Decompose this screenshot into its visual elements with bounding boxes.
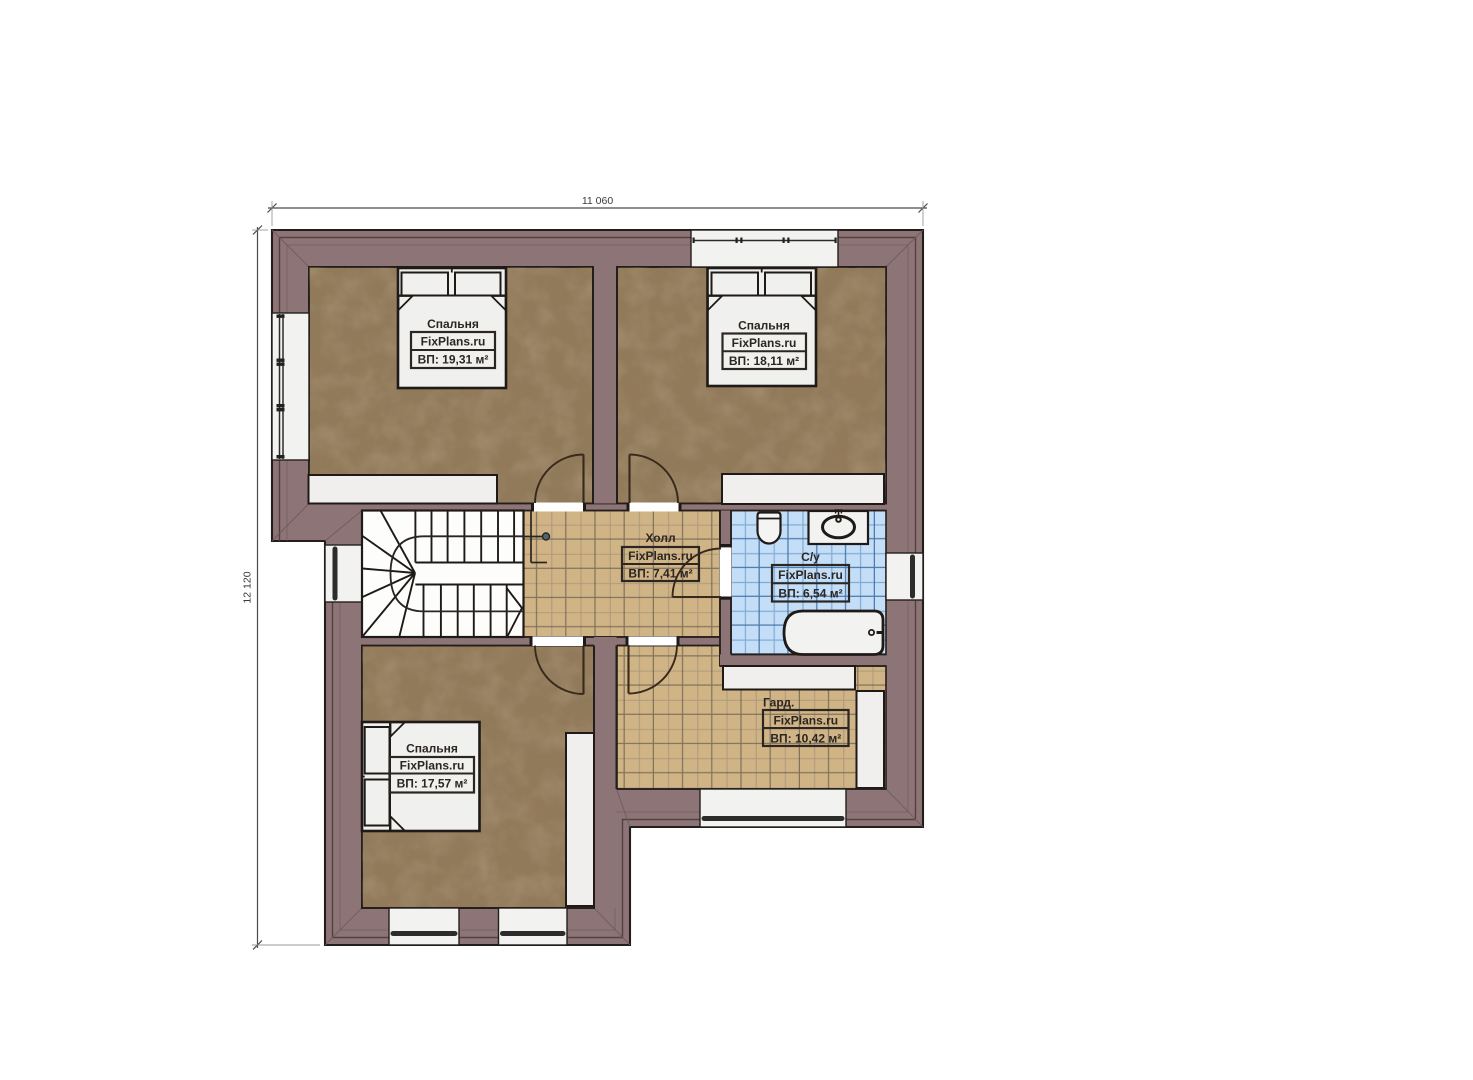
svg-text:ВП: 17,57 м²: ВП: 17,57 м² xyxy=(397,777,468,791)
svg-text:Гард.: Гард. xyxy=(763,696,794,710)
svg-text:FixPlans.ru: FixPlans.ru xyxy=(421,335,486,349)
svg-text:FixPlans.ru: FixPlans.ru xyxy=(778,568,843,582)
svg-text:ВП: 18,11 м²: ВП: 18,11 м² xyxy=(729,354,799,368)
svg-text:12 120: 12 120 xyxy=(242,571,254,603)
svg-text:FixPlans.ru: FixPlans.ru xyxy=(732,336,797,350)
svg-text:Спальня: Спальня xyxy=(406,742,458,756)
svg-text:FixPlans.ru: FixPlans.ru xyxy=(773,714,838,728)
svg-text:Спальня: Спальня xyxy=(738,319,790,333)
svg-text:FixPlans.ru: FixPlans.ru xyxy=(400,759,465,773)
svg-text:С/у: С/у xyxy=(801,550,820,564)
svg-text:Спальня: Спальня xyxy=(427,317,479,331)
svg-text:FixPlans.ru: FixPlans.ru xyxy=(628,549,693,563)
svg-text:ВП: 10,42 м²: ВП: 10,42 м² xyxy=(770,732,841,746)
svg-text:Холл: Холл xyxy=(645,531,675,545)
svg-text:ВП: 19,31 м²: ВП: 19,31 м² xyxy=(418,353,489,367)
svg-text:ВП: 7,41 м²: ВП: 7,41 м² xyxy=(628,567,692,581)
svg-text:ВП: 6,54 м²: ВП: 6,54 м² xyxy=(778,587,842,601)
svg-text:11 060: 11 060 xyxy=(582,195,613,207)
